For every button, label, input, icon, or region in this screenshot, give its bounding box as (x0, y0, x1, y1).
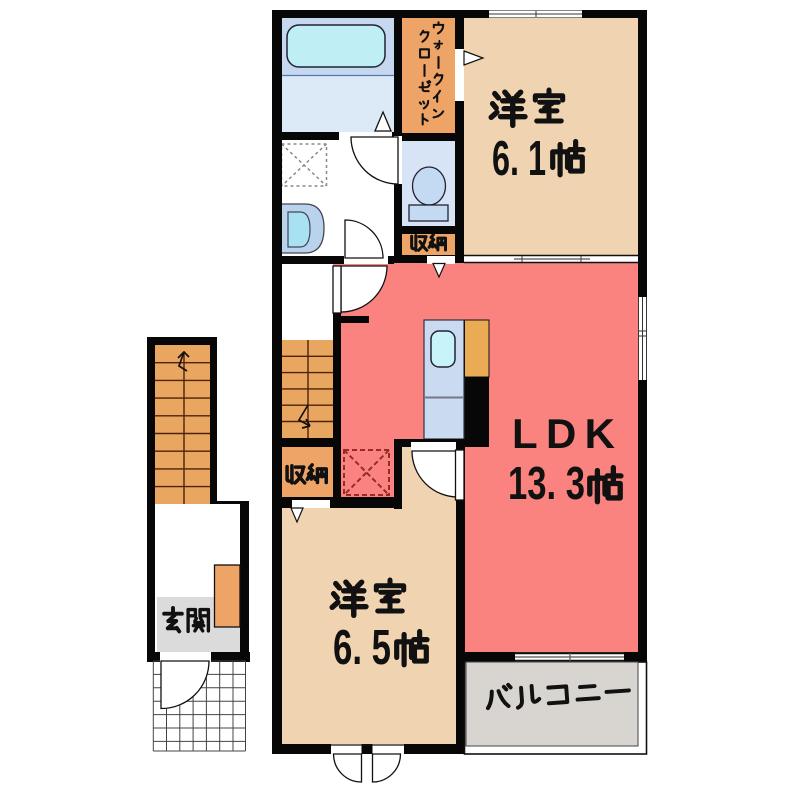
svg-text:LDK: LDK (512, 410, 615, 457)
svg-text:13. 3: 13. 3 (508, 457, 585, 509)
svg-text:6. 5: 6. 5 (333, 621, 391, 675)
svg-text:6. 1: 6. 1 (492, 132, 546, 186)
